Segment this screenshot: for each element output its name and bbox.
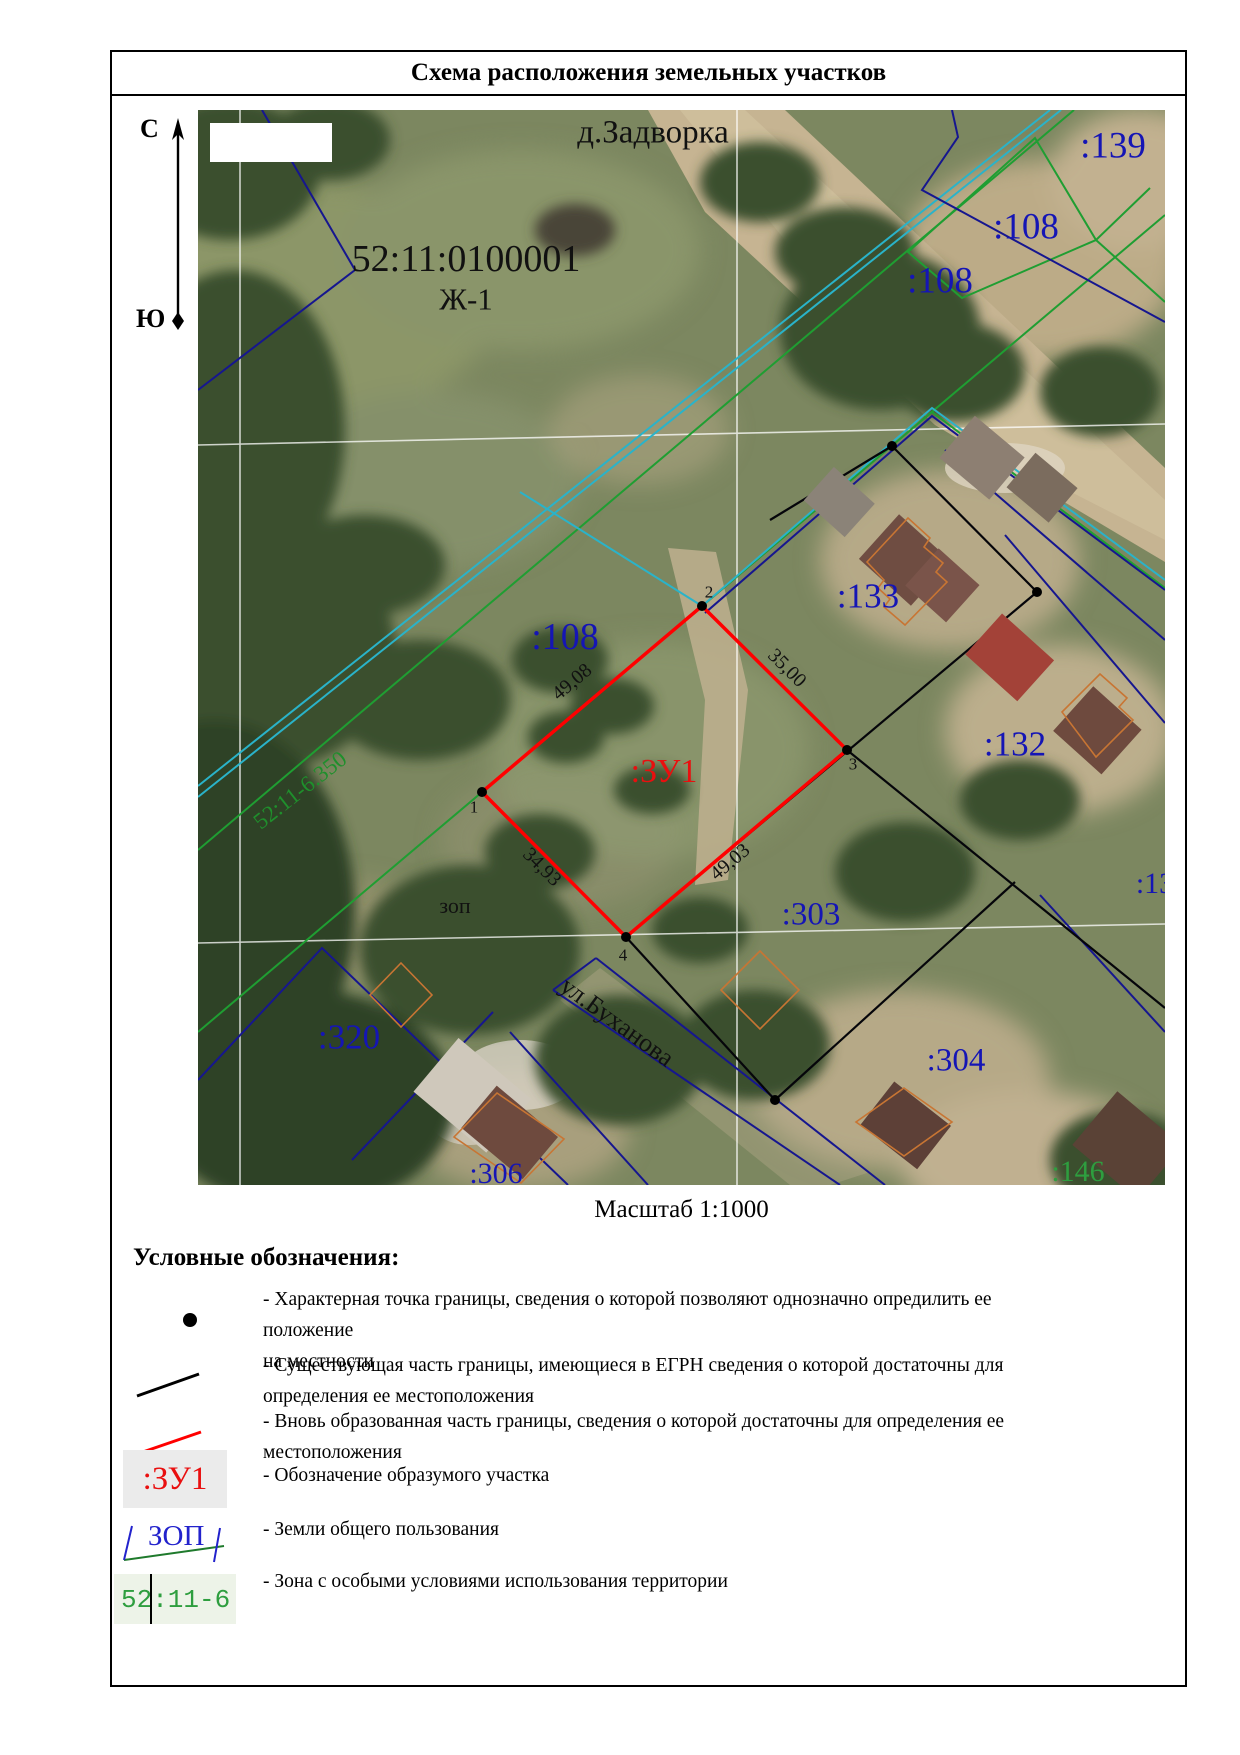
vertex-label-2: 2 — [705, 584, 714, 601]
parcel-label-13: :13 — [1136, 869, 1165, 899]
compass-north-label: С — [140, 114, 159, 144]
legend-item-new-parcel: - Обозначение образумого участка — [263, 1460, 1063, 1491]
satellite-map: д.Задворка 52:11:0100001 Ж-1 :139 :108 :… — [198, 110, 1165, 1185]
legend-item-common-land: - Земли общего пользования — [263, 1514, 1063, 1545]
special-zone-symbol-line — [150, 1574, 152, 1624]
vertex-label-3: 3 — [849, 756, 858, 773]
existing-boundary-symbol-icon — [133, 1366, 253, 1402]
new-parcel-label: :ЗУ1 — [631, 755, 698, 789]
scale-label: Масштаб 1:1000 — [198, 1196, 1165, 1224]
page-title: Схема расположения земельных участков — [112, 52, 1185, 96]
settlement-label: д.Задворка — [577, 117, 729, 150]
vertex-label-1: 1 — [470, 799, 479, 816]
compass-arrow-icon — [164, 116, 194, 336]
parcel-label-320: :320 — [318, 1020, 380, 1055]
legend-item-special-zone: - Зона с особыми условиями использования… — [263, 1566, 1063, 1597]
compass-south-label: Ю — [136, 304, 165, 334]
common-land-symbol: ЗОП — [116, 1512, 232, 1566]
parcel-label-303: :303 — [782, 899, 841, 932]
legend-item-new-boundary: - Вновь образованная часть границы, свед… — [263, 1406, 1063, 1468]
territorial-zone-label: Ж-1 — [439, 284, 493, 315]
cadastral-quarter-label: 52:11:0100001 — [352, 240, 581, 278]
parcel-label-108c: :108 — [531, 618, 599, 656]
parcel-label-108a: :108 — [993, 209, 1059, 246]
parcel-label-146: :146 — [1051, 1157, 1104, 1185]
special-zone-symbol: 52:11-6 — [114, 1574, 236, 1624]
blank-box — [210, 123, 332, 162]
parcel-label-132: :132 — [984, 727, 1046, 762]
scheme-page: Схема расположения земельных участков С … — [0, 0, 1240, 1755]
legend-header: Условные обозначения: — [133, 1244, 399, 1272]
point-symbol-icon — [176, 1306, 296, 1336]
vertex-label-4: 4 — [619, 947, 628, 964]
new-parcel-symbol: :ЗУ1 — [123, 1450, 227, 1508]
parcel-label-133: :133 — [837, 579, 899, 614]
parcel-label-304: :304 — [927, 1045, 986, 1078]
parcel-label-306: :306 — [469, 1159, 522, 1185]
legend-item-existing-boundary: - Существующая часть границы, имеющиеся … — [263, 1350, 1063, 1412]
common-land-label: зоп — [439, 895, 470, 917]
parcel-label-108b: :108 — [907, 263, 973, 300]
parcel-label-139: :139 — [1080, 128, 1146, 165]
